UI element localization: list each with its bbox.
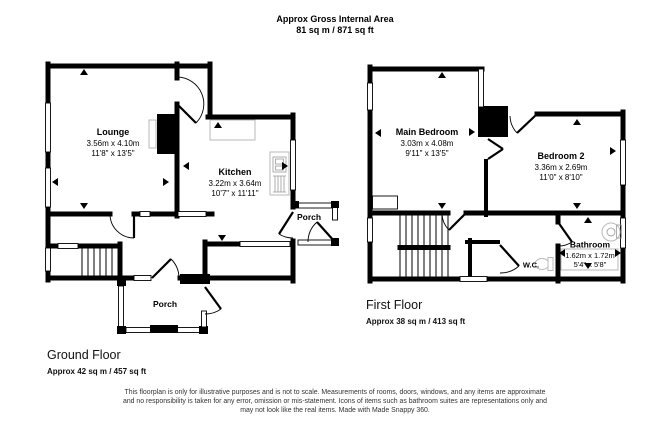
chimney-breast-first [478, 106, 508, 137]
disclaimer-line2: and no responsibility is taken for any e… [0, 397, 670, 406]
ground-stairs [82, 247, 122, 277]
first-floor-plan: Main Bedroom 3.03m x 4.08m 9'11" x 13'5"… [360, 55, 645, 295]
lounge-label: Lounge 3.56m x 4.10m 11'8" x 13'5" [87, 127, 140, 158]
bedroom2-metric: 3.36m x 2.69m [535, 163, 588, 172]
side-porch [279, 201, 339, 246]
bathroom-metric: 1.62m x 1.72m [565, 251, 615, 260]
kitchen-worktop [210, 120, 255, 140]
lounge-metric: 3.56m x 4.10m [87, 139, 140, 148]
first-doors [442, 115, 572, 273]
kitchen-imperial: 10'7" x 11'11" [211, 189, 258, 198]
ground-floor-area: Approx 42 sq m / 457 sq ft [47, 365, 146, 378]
bedroom2-label: Bedroom 2 3.36m x 2.69m 11'0" x 8'10" [535, 151, 588, 182]
lounge-imperial: 11'8" x 13'5" [91, 149, 134, 158]
first-stairs [400, 215, 448, 277]
disclaimer-line1: This floorplan is only for illustrative … [0, 388, 670, 397]
fireplace-hearth [149, 120, 156, 148]
ground-floor-plan: Lounge 3.56m x 4.10m 11'8" x 13'5" Kitch… [40, 55, 350, 345]
lounge-name: Lounge [97, 127, 130, 137]
disclaimer: This floorplan is only for illustrative … [0, 388, 670, 415]
side-porch-label: Porch [297, 212, 321, 222]
ground-walls [48, 64, 293, 284]
ground-floor-title-block: Ground Floor Approx 42 sq m / 457 sq ft [47, 349, 146, 378]
kitchen-name: Kitchen [218, 167, 251, 177]
kitchen-metric: 3.22m x 3.64m [209, 179, 262, 188]
shower-icon [602, 223, 622, 241]
wc-label: W.C. [523, 261, 539, 270]
header-line2: 81 sq m / 871 sq ft [0, 25, 670, 36]
chimney-breast [157, 114, 179, 154]
cupboard-doors [488, 139, 503, 159]
gross-internal-area-header: Approx Gross Internal Area 81 sq m / 871… [0, 14, 670, 36]
ground-doors [110, 77, 204, 278]
kitchen-label: Kitchen 3.22m x 3.64m 10'7" x 11'11" [209, 167, 262, 198]
header-line1: Approx Gross Internal Area [0, 14, 670, 25]
bathroom-imperial: 5'4" x 5'8" [574, 260, 607, 269]
bedroom2-imperial: 11'0" x 8'10" [539, 173, 582, 182]
bathroom-name: Bathroom [570, 240, 611, 250]
bedroom2-name: Bedroom 2 [537, 151, 584, 161]
floorplan-page: Approx Gross Internal Area 81 sq m / 871… [0, 0, 670, 425]
main-bedroom-metric: 3.03m x 4.08m [401, 139, 454, 148]
main-bedroom-label: Main Bedroom 3.03m x 4.08m 9'11" x 13'5" [396, 127, 459, 158]
first-floor-title: First Floor [366, 299, 465, 312]
ground-floor-title: Ground Floor [47, 349, 146, 362]
first-floor-title-block: First Floor Approx 38 sq m / 413 sq ft [366, 299, 465, 328]
main-bedroom-name: Main Bedroom [396, 127, 459, 137]
first-floor-area: Approx 38 sq m / 413 sq ft [366, 315, 465, 328]
front-porch-label: Porch [153, 299, 177, 309]
kitchen-sink-icon [270, 152, 289, 195]
built-in-cupboard [373, 196, 398, 209]
disclaimer-line3: may not look like the real items. Made w… [0, 406, 670, 415]
main-bedroom-imperial: 9'11" x 13'5" [405, 149, 448, 158]
